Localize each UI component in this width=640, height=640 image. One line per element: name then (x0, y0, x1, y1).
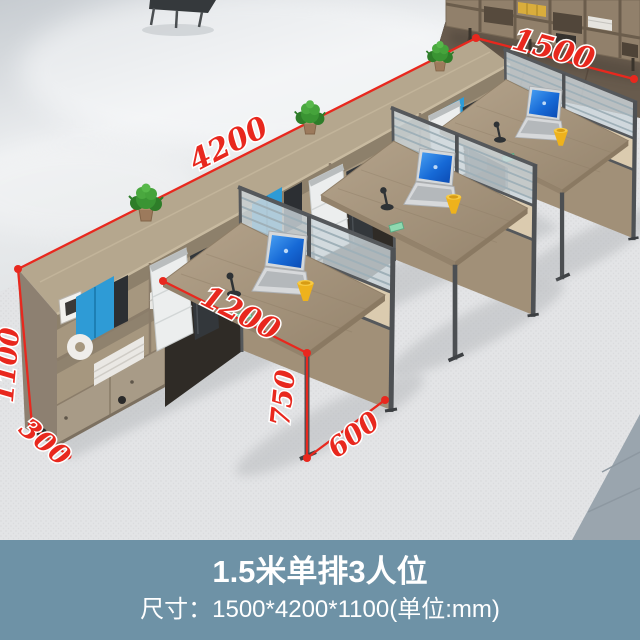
caster-wheel (118, 396, 126, 404)
product-spec: 尺寸：1500*4200*1100(单位:mm) (140, 596, 500, 623)
product-title: 1.5米单排3人位 (212, 554, 427, 589)
product-image: 4200 1500 1100 300 1200 750 600 1.5米单排3人… (0, 0, 640, 640)
dimension-label-750: 750 (265, 368, 302, 428)
